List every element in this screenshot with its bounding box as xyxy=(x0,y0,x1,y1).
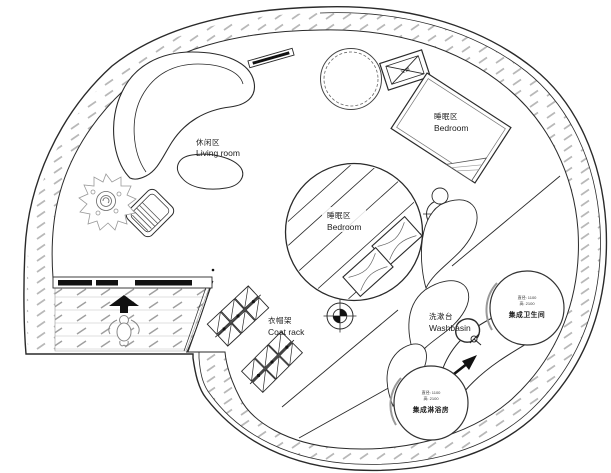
bedroom-center-label-en: Bedroom xyxy=(327,222,362,232)
bathroom-pod: 直径: 1100 高: 2100 集成卫生间 xyxy=(486,271,564,345)
bedroom-upper-label-zh: 睡眠区 xyxy=(434,112,458,121)
entrance-corridor xyxy=(53,277,225,352)
wall-shelf xyxy=(248,48,294,67)
round-stool xyxy=(321,49,382,110)
shower-diameter: 直径: 1100 xyxy=(422,389,442,395)
coat-rack-group xyxy=(205,284,271,348)
floor-plan-canvas: 空调 xyxy=(0,0,611,473)
coat-rack-label-zh: 衣帽架 xyxy=(268,315,292,325)
living-room-label-zh: 休闲区 xyxy=(196,137,220,147)
light-fixture-icon xyxy=(324,300,357,333)
coat-rack-label-en: Coat rack xyxy=(268,327,305,337)
door-panel xyxy=(135,280,192,286)
shower-height: 高: 2100 xyxy=(423,395,439,401)
entrance-door xyxy=(53,277,212,288)
shower-name: 集成淋浴房 xyxy=(412,405,449,414)
door-panel xyxy=(58,280,92,286)
dot-marker xyxy=(212,269,215,272)
corridor-floor-hatch xyxy=(55,288,209,351)
washbasin-label-en: Washbasin xyxy=(429,323,471,333)
bathroom-diameter: 直径: 1100 xyxy=(518,294,538,300)
coffee-table xyxy=(177,154,242,189)
bathroom-name: 集成卫生间 xyxy=(508,310,545,319)
coat-rack-group xyxy=(239,329,304,394)
door-panel xyxy=(96,280,118,286)
bedroom-center-label-zh: 睡眠区 xyxy=(327,211,351,220)
living-room-label-en: Living room xyxy=(196,148,240,158)
bedroom-upper-label-en: Bedroom xyxy=(434,123,469,133)
washbasin-label-zh: 洗漱台 xyxy=(429,311,453,321)
bathroom-height: 高: 2100 xyxy=(519,300,535,306)
plant-icon xyxy=(79,174,136,230)
partition-line-bottom xyxy=(299,386,392,438)
floor-plan-drawing: 空调 xyxy=(0,0,611,473)
